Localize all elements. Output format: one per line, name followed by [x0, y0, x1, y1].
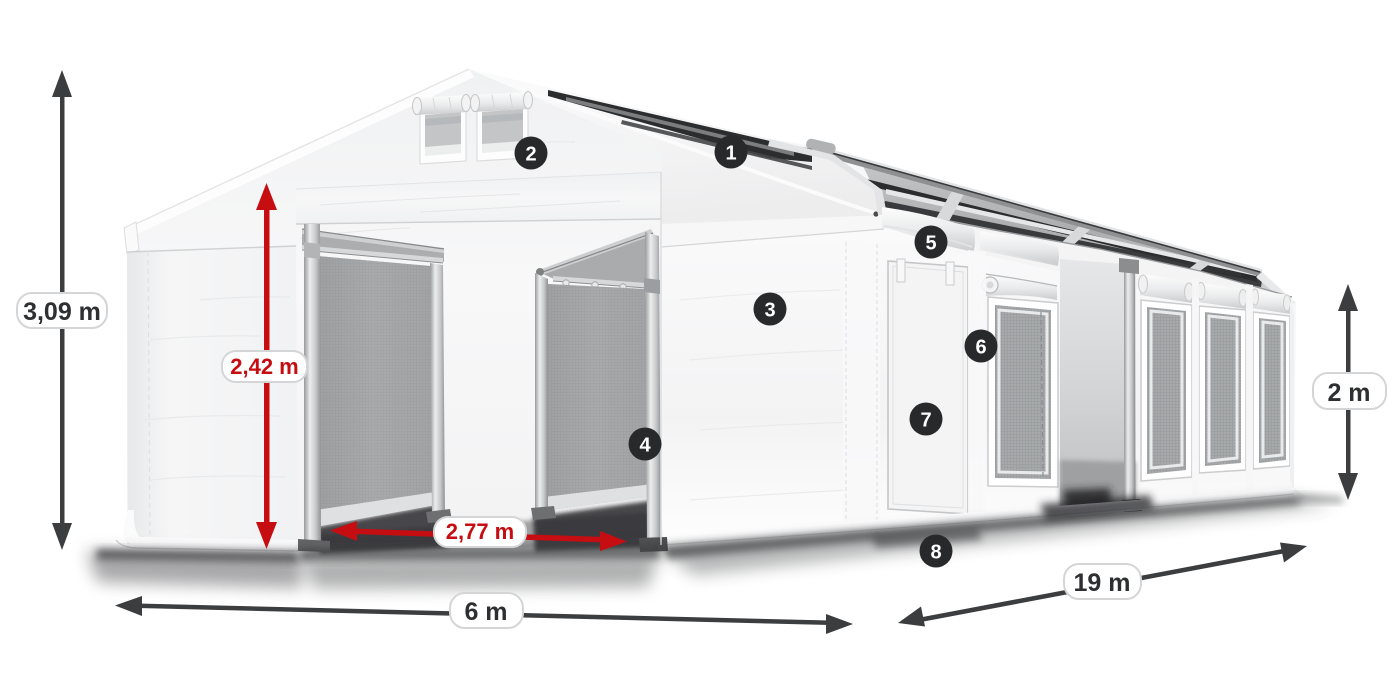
svg-text:8: 8	[930, 542, 941, 564]
svg-text:2,77 m: 2,77 m	[446, 519, 515, 544]
svg-text:5: 5	[925, 233, 936, 255]
svg-text:1: 1	[725, 143, 736, 165]
svg-text:7: 7	[920, 410, 931, 432]
svg-text:4: 4	[639, 435, 651, 457]
svg-text:3,09 m: 3,09 m	[23, 298, 101, 326]
svg-text:6 m: 6 m	[464, 598, 507, 626]
svg-text:2 m: 2 m	[1327, 379, 1370, 407]
svg-text:6: 6	[975, 337, 986, 359]
svg-text:3: 3	[764, 300, 775, 322]
svg-text:2: 2	[525, 144, 536, 166]
svg-text:2,42 m: 2,42 m	[230, 354, 299, 379]
svg-text:19 m: 19 m	[1074, 569, 1131, 597]
